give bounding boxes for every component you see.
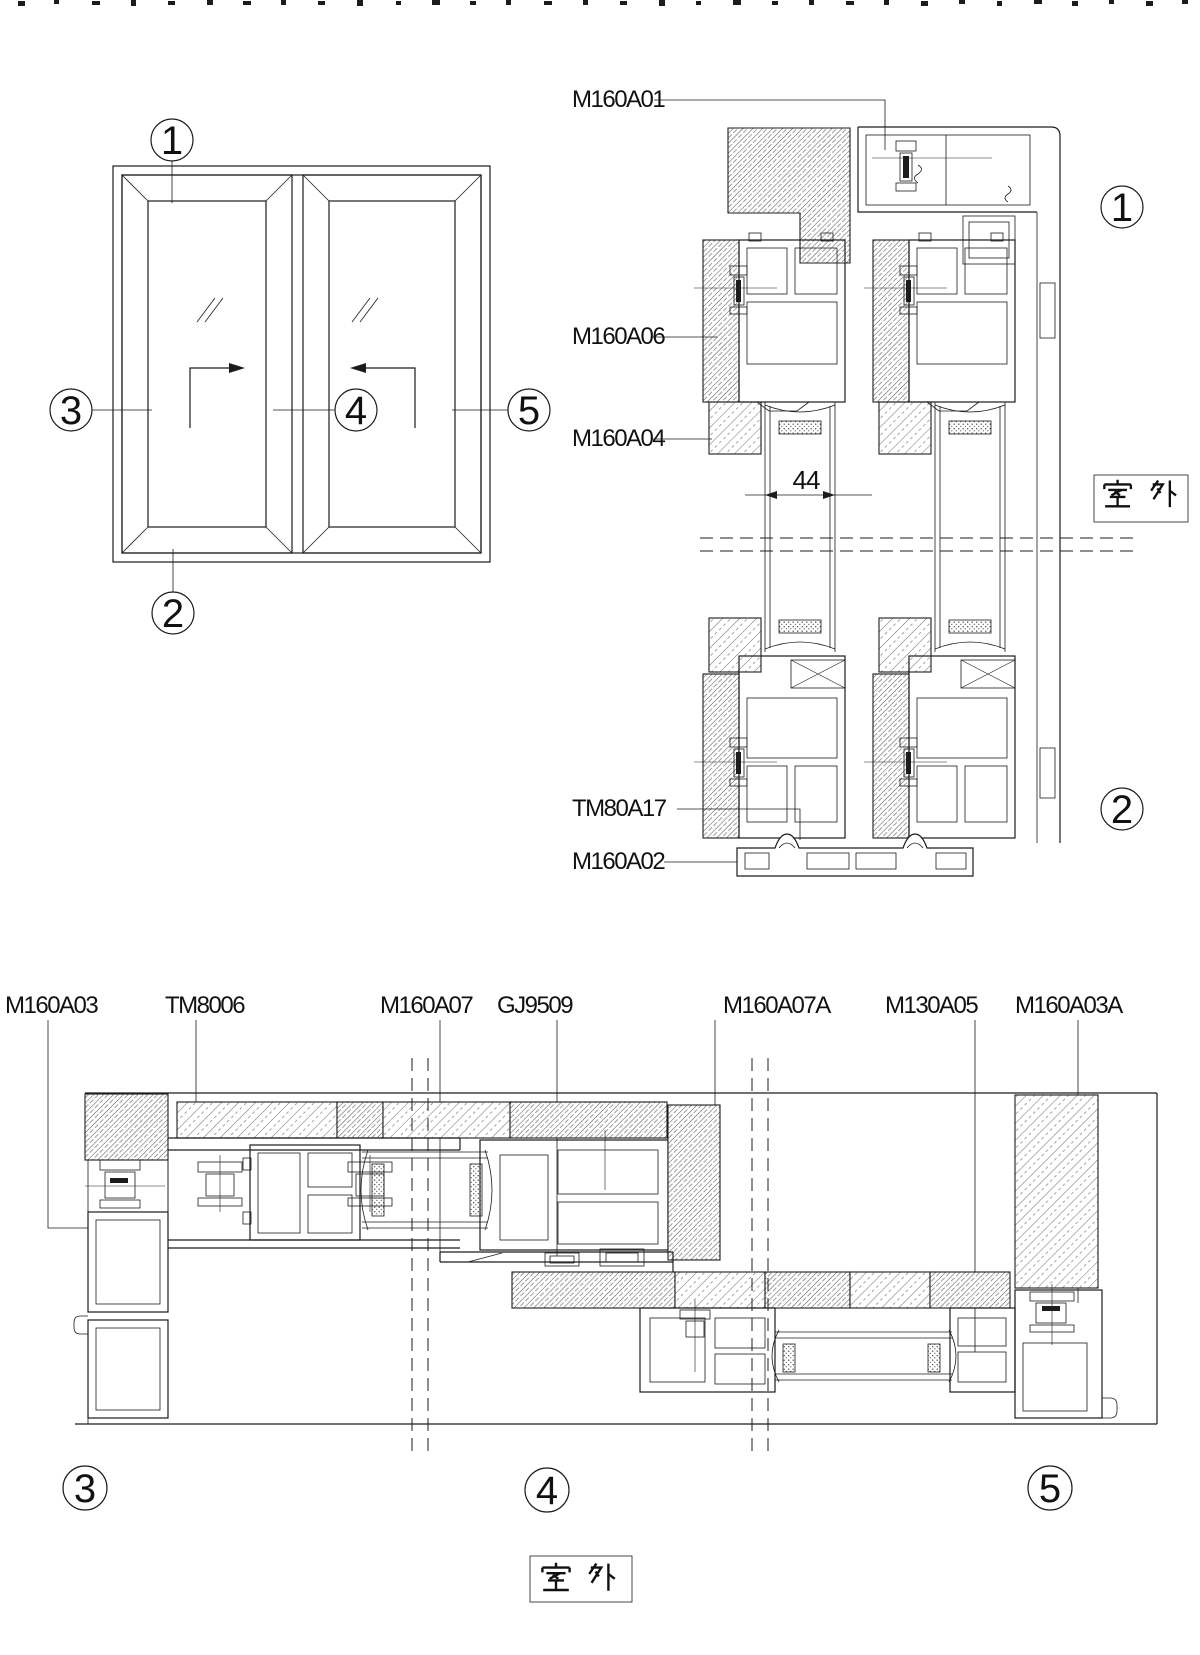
leader-line [48, 1020, 88, 1228]
section-marker-5: 5 [1028, 1466, 1072, 1511]
elevation-view: 1 2 3 4 5 [50, 119, 550, 636]
outdoor-label-box: 室 外 [530, 1556, 632, 1602]
interlock-stile [480, 1130, 668, 1250]
upper-frame-row [168, 1102, 667, 1248]
section-marker-3: 3 [63, 1466, 107, 1511]
left-jamb-assembly [74, 1094, 168, 1424]
part-label: M160A07A [723, 992, 831, 1019]
marker-number: 5 [518, 389, 540, 433]
sash-column-right [864, 233, 1015, 838]
part-label: TM8006 [165, 992, 245, 1019]
part-label: M160A06 [572, 323, 665, 350]
section-marker-2: 2 [1101, 788, 1143, 832]
marker-number: 4 [536, 1469, 558, 1513]
outdoor-label-box: 室 外 [1094, 475, 1188, 522]
glass-symbol-left [197, 298, 223, 322]
sash-column-left [694, 233, 845, 838]
outer-panel-glass [772, 1330, 956, 1382]
slide-arrow-right-icon [190, 363, 245, 428]
vertical-section-detail: 44 M160A01 M160A06 M160A04 TM80A17 M160A… [572, 86, 1188, 876]
glass-symbol-right [352, 298, 378, 322]
drawing-canvas: 1 2 3 4 5 [0, 0, 1200, 1655]
cad-drawing-page: 1 2 3 4 5 [0, 0, 1200, 1655]
dimension-text: 44 [793, 465, 820, 495]
connector-profile [440, 1249, 673, 1272]
part-label: M160A03A [1015, 992, 1123, 1019]
section-marker-4: 4 [525, 1468, 569, 1513]
wall-block-right [1015, 1095, 1098, 1288]
lower-frame-row [512, 1272, 1010, 1308]
section-outline [75, 1093, 1157, 1424]
marker-number: 1 [161, 119, 183, 163]
horizontal-section-detail: M160A03 TM8006 M160A07 GJ9509 M160A07A M… [5, 992, 1157, 1602]
marker-number: 2 [162, 592, 184, 636]
part-label: TM80A17 [572, 795, 667, 822]
section-marker-1: 1 [1101, 186, 1143, 230]
break-line-horizontal [700, 538, 1140, 551]
section-marker-3: 3 [50, 389, 152, 433]
interlock-wall-block [668, 1105, 720, 1260]
marker-number: 1 [1111, 186, 1133, 230]
marker-number: 4 [345, 389, 367, 433]
marker-number: 2 [1111, 788, 1133, 832]
wall-block-head [728, 128, 850, 263]
window-frame [113, 166, 490, 562]
outer-panel-stile-right [950, 1308, 1015, 1392]
part-label: M160A04 [572, 425, 665, 452]
part-label: GJ9509 [497, 992, 573, 1019]
part-label: M160A07 [380, 992, 473, 1019]
outer-panel-stile [640, 1300, 775, 1392]
section-marker-5: 5 [452, 389, 550, 433]
marker-number: 3 [74, 1467, 96, 1511]
section-marker-4: 4 [273, 389, 377, 433]
inner-panel-stile-left [243, 1145, 360, 1240]
part-label: M160A03 [5, 992, 98, 1019]
marker-number: 5 [1039, 1467, 1061, 1511]
section-marker-1: 1 [151, 119, 193, 203]
right-jamb-assembly [1015, 1284, 1117, 1418]
dimension-44: 44 [745, 465, 872, 499]
part-label: M160A02 [572, 848, 665, 875]
cropped-toolbar-strip [18, 0, 1188, 6]
part-label: M130A05 [885, 992, 978, 1019]
bottom-track-profile [737, 834, 973, 876]
part-label: M160A01 [572, 86, 665, 113]
marker-number: 3 [60, 389, 82, 433]
